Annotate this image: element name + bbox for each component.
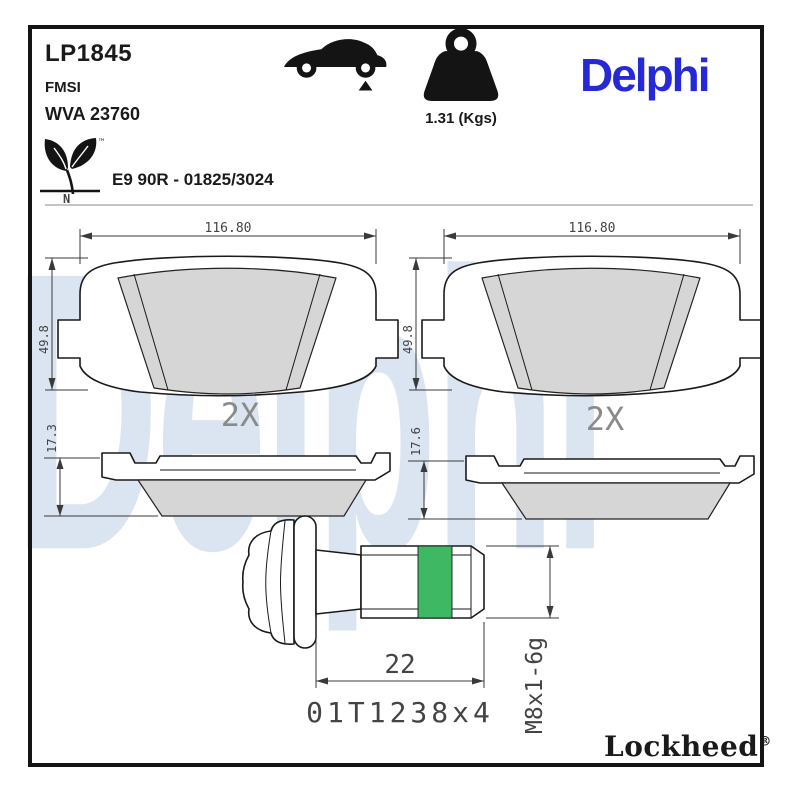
thread-lock-band [418,546,452,618]
header-separator [45,204,753,206]
part-number: LP1845 [45,40,132,68]
lockheed-text: Lockheed [604,730,758,763]
pad-front-view-right: 116.80 49.8 [402,220,767,410]
thread-spec: M8x1-6g [522,637,548,734]
dim-pad-width-left: 116.80 [205,221,252,236]
bolt-flange [294,516,316,648]
rear-axle-marker-icon [359,81,373,91]
eco-n: N [63,192,70,204]
bolt-hex-head [243,520,294,644]
eco-tm: ™ [98,138,104,148]
homologation-number: E9 90R - 01825/3024 [112,170,274,190]
eco-leaf-icon: ™ N [36,134,110,204]
bolt-marking-ref: 01T1238x4 [306,696,494,729]
fmsi-label: FMSI [45,79,81,96]
delphi-logo: Delphi [580,48,709,102]
bolt-shank [316,550,361,614]
dim-pad-thickness-left: 17.3 [45,424,59,453]
dim-pad-width-right: 116.80 [569,221,616,236]
datasheet-page: Delphi LP1845 FMSI WVA 23760 1.31 (Kgs) … [0,0,800,800]
dim-pad-thickness-right: 17.6 [409,427,423,456]
car-rear-axle-icon [280,34,398,94]
lockheed-logo: Lockheed® [604,730,772,763]
dim-pad-height-left: 49.8 [38,325,51,354]
dim-pad-height-right: 49.8 [402,325,415,354]
weight-icon [414,28,508,110]
registered-mark: ® [758,735,772,750]
dim-bolt-length: 22 [384,650,415,680]
wva-number: WVA 23760 [45,104,140,125]
bolt-drawing: M8x1-6g 22 01T1238x4 [228,502,573,737]
weight-value: 1.31 (Kgs) [398,110,524,127]
pad-front-view-left: 116.80 49.8 [38,220,403,410]
